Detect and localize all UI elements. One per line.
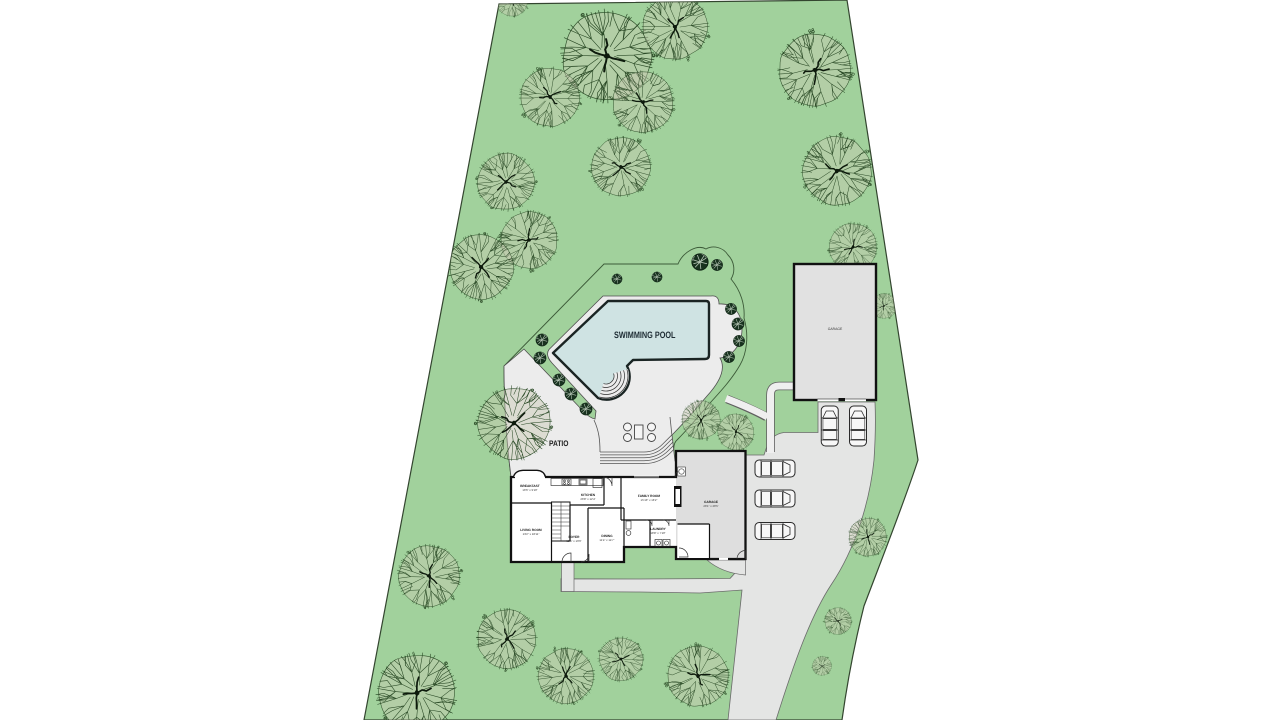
- svg-text:13'2" x 18'11": 13'2" x 18'11": [523, 532, 540, 536]
- svg-text:23'8" x 12'4": 23'8" x 12'4": [580, 497, 595, 501]
- svg-text:12'5" x 13'6": 12'5" x 13'6": [566, 539, 581, 543]
- svg-text:10'8" x 7'10": 10'8" x 7'10": [650, 531, 665, 535]
- svg-text:PATIO: PATIO: [549, 439, 569, 448]
- svg-text:SWIMMING POOL: SWIMMING POOL: [614, 330, 676, 340]
- svg-text:15'10" x 13'2": 15'10" x 13'2": [641, 498, 658, 502]
- svg-text:23'1" x 20'5": 23'1" x 20'5": [703, 504, 718, 508]
- svg-text:11'4" x 14'7": 11'4" x 14'7": [599, 538, 614, 542]
- svg-text:GARAGE: GARAGE: [828, 327, 843, 331]
- svg-text:13'6" x 9'10": 13'6" x 9'10": [522, 488, 537, 492]
